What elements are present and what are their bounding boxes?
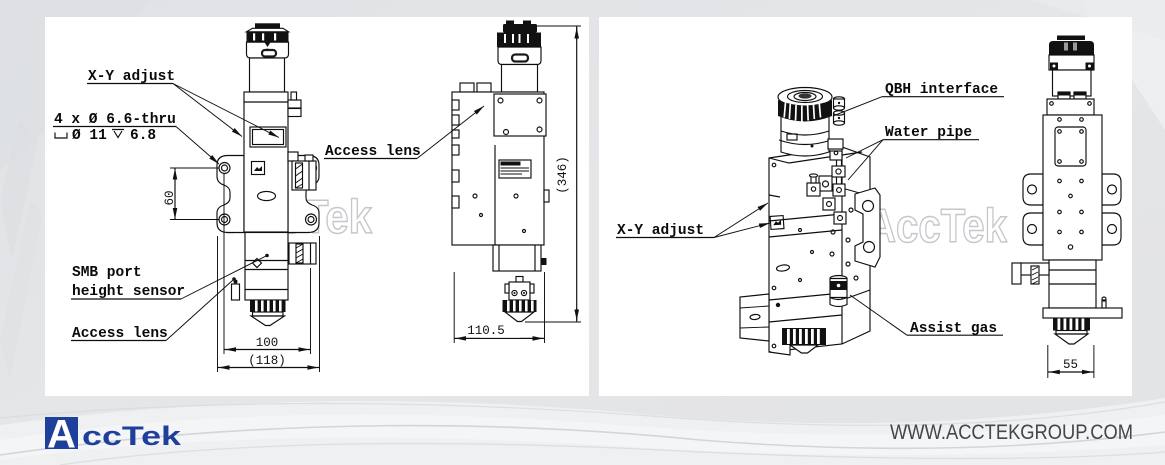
svg-text:55: 55 [1063,358,1078,372]
svg-text:AccTek: AccTek [867,199,1008,252]
svg-text:WWW.ACCTEKGROUP.COM: WWW.ACCTEKGROUP.COM [890,421,1133,444]
svg-text:X-Y adjust: X-Y adjust [617,223,704,239]
svg-text:4 x Ø 6.6-thru: 4 x Ø 6.6-thru [54,112,176,128]
svg-text:ccTek: ccTek [82,421,182,451]
svg-text:6.8: 6.8 [130,128,156,144]
svg-text:SMB port: SMB port [72,265,142,281]
svg-text:X-Y adjust: X-Y adjust [88,69,175,85]
svg-text:Access lens: Access lens [325,144,421,160]
svg-text:Assist gas: Assist gas [910,321,997,337]
svg-text:(346): (346) [556,156,570,194]
svg-text:Ø 11: Ø 11 [72,128,107,144]
svg-text:100: 100 [256,336,279,350]
svg-text:(118): (118) [248,354,286,368]
svg-text:A: A [47,413,76,457]
svg-text:110.5: 110.5 [467,324,505,338]
svg-text:Water pipe: Water pipe [885,125,972,141]
svg-text:height sensor: height sensor [72,284,185,300]
svg-text:Access lens: Access lens [72,326,168,342]
svg-text:QBH interface: QBH interface [885,82,998,98]
